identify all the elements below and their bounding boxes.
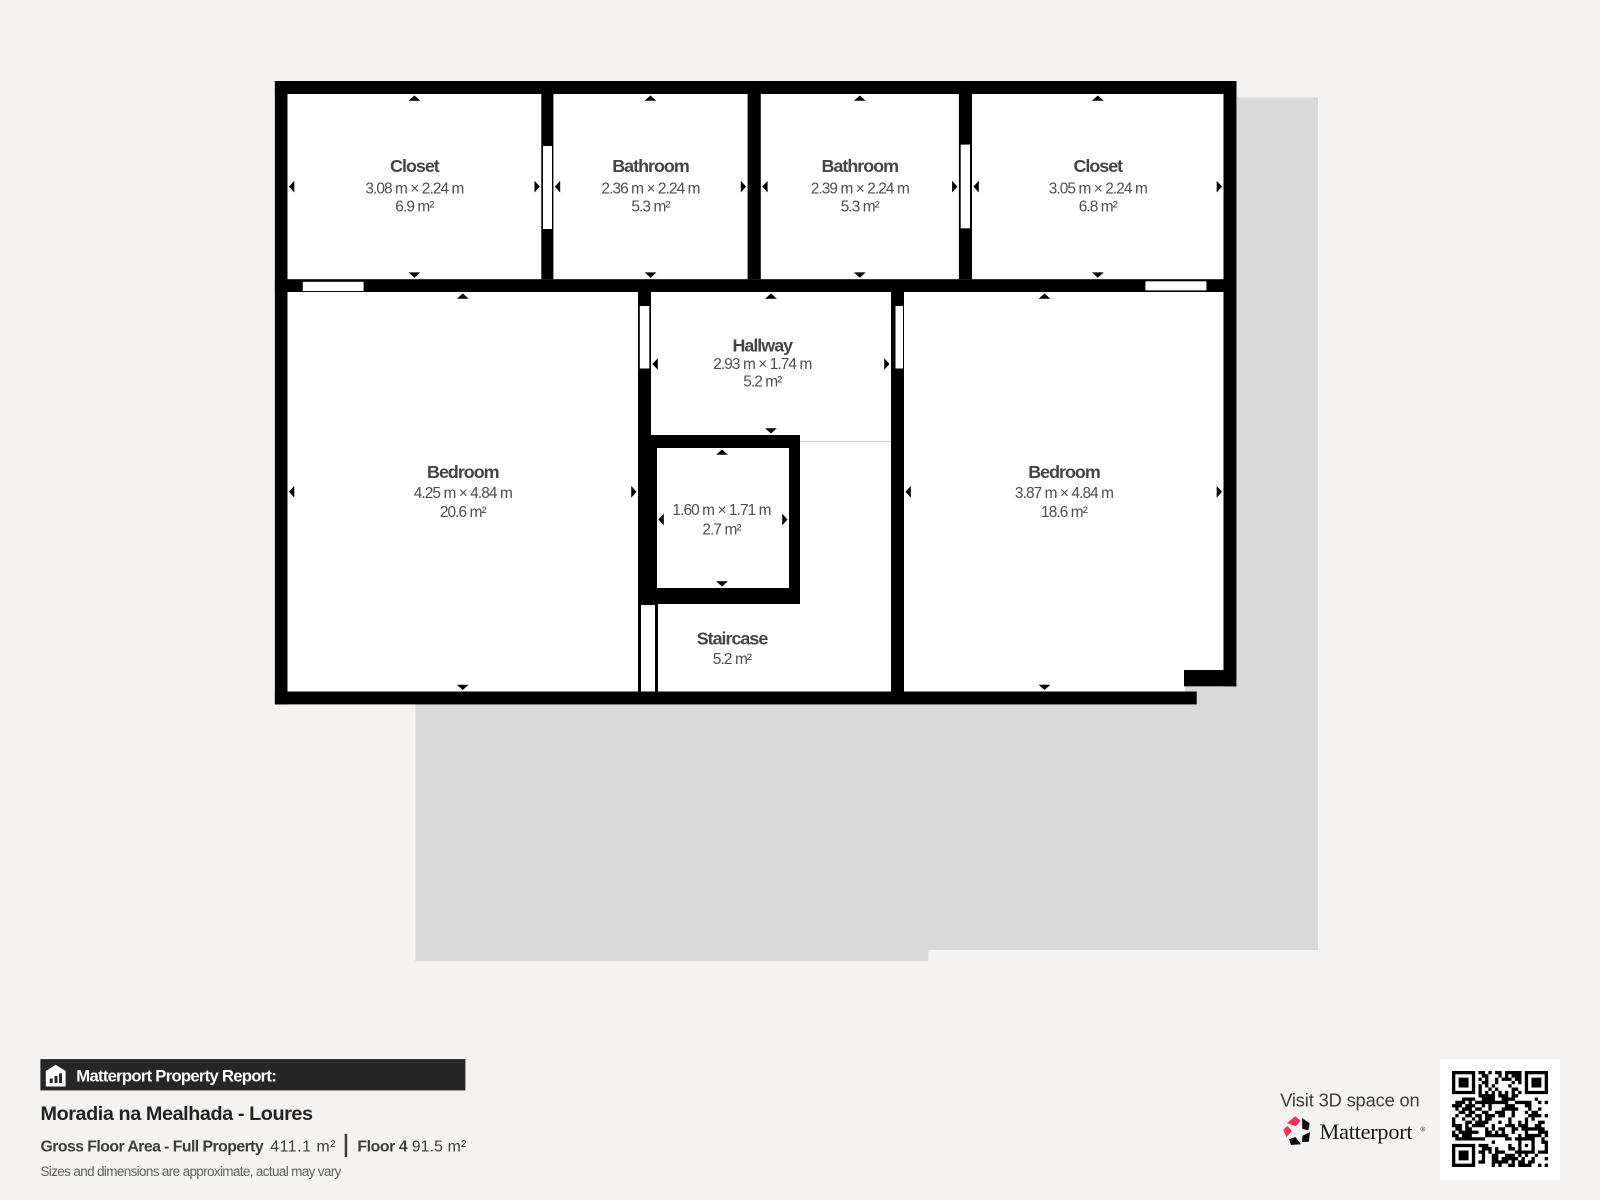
svg-text:Visit 3D space on: Visit 3D space on — [1280, 1090, 1419, 1111]
svg-text:2.7 m²: 2.7 m² — [702, 521, 741, 538]
svg-text:Bathroom: Bathroom — [612, 156, 689, 176]
svg-text:®: ® — [1421, 1126, 1426, 1134]
svg-text:20.6 m²: 20.6 m² — [440, 504, 487, 521]
svg-text:2.36 m × 2.24 m: 2.36 m × 2.24 m — [601, 181, 699, 198]
svg-text:6.8 m²: 6.8 m² — [1079, 199, 1118, 216]
svg-text:3.08 m × 2.24 m: 3.08 m × 2.24 m — [365, 181, 463, 198]
svg-text:18.6 m²: 18.6 m² — [1041, 504, 1088, 521]
svg-text:Matterport Property Report:: Matterport Property Report: — [76, 1067, 276, 1086]
svg-text:5.3 m²: 5.3 m² — [631, 199, 670, 216]
svg-text:3.05 m × 2.24 m: 3.05 m × 2.24 m — [1049, 181, 1147, 198]
svg-text:411.1 m²: 411.1 m² — [270, 1139, 336, 1156]
svg-text:Bedroom: Bedroom — [1028, 462, 1100, 482]
svg-text:Hallway: Hallway — [732, 336, 793, 356]
svg-text:Staircase: Staircase — [697, 628, 769, 648]
svg-text:5.2 m²: 5.2 m² — [713, 651, 752, 668]
svg-text:Moradia na Mealhada - Loures: Moradia na Mealhada - Loures — [41, 1103, 314, 1125]
svg-text:2.93 m × 1.74 m: 2.93 m × 1.74 m — [713, 356, 811, 373]
svg-text:1.60 m × 1.71 m: 1.60 m × 1.71 m — [672, 502, 770, 519]
svg-text:4.25 m × 4.84 m: 4.25 m × 4.84 m — [414, 485, 512, 502]
svg-text:Matterport: Matterport — [1320, 1119, 1414, 1144]
svg-text:Bedroom: Bedroom — [427, 462, 499, 482]
svg-text:91.5 m²: 91.5 m² — [412, 1139, 467, 1156]
svg-text:Closet: Closet — [1073, 156, 1123, 176]
svg-text:6.9 m²: 6.9 m² — [395, 199, 434, 216]
svg-text:Gross Floor Area - Full Proper: Gross Floor Area - Full Property — [41, 1139, 264, 1156]
svg-text:5.2 m²: 5.2 m² — [743, 374, 782, 391]
svg-text:Sizes and dimensions are appro: Sizes and dimensions are approximate, ac… — [41, 1164, 342, 1179]
svg-text:3.87 m × 4.84 m: 3.87 m × 4.84 m — [1015, 485, 1113, 502]
svg-text:Floor 4: Floor 4 — [357, 1139, 407, 1156]
svg-text:2.39 m × 2.24 m: 2.39 m × 2.24 m — [811, 181, 909, 198]
svg-text:Bathroom: Bathroom — [822, 156, 899, 176]
svg-text:Closet: Closet — [390, 156, 440, 176]
svg-text:5.3 m²: 5.3 m² — [841, 199, 880, 216]
